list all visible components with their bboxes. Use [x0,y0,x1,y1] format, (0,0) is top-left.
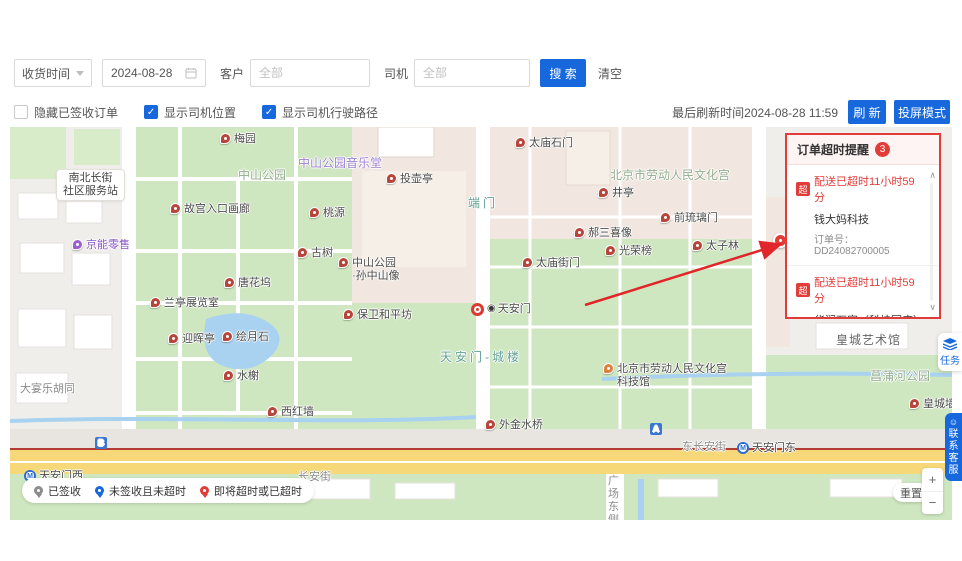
poi-label[interactable]: 太庙街门 [522,257,580,270]
poi-label[interactable]: 古树 [297,247,333,260]
poi-icon [605,245,616,256]
legend-label: 未签收且未超时 [109,483,186,499]
driver-label: 司机 [384,65,408,82]
alert-customer: 华润万家（科技园店）2 [814,312,925,319]
poi-icon [224,277,235,288]
poi-text: 中山公园·孙中山像 [352,257,400,283]
poi-icon [168,333,179,344]
metro-exit-icon: A [650,423,662,435]
poi-icon [515,137,526,148]
poi-icon [343,309,354,320]
poi-icon [150,297,161,308]
poi-icon [692,240,703,251]
poi-text: 投壶亭 [400,173,433,186]
alert-list: 超配送已超时11小时59分钱大妈科技订单号：DD24082700005超配送已超… [787,165,939,319]
attraction-icon: ◉ [487,303,496,314]
delivery-map-page: 收货时间 2024-08-28 客户 司机 搜 索 清空 隐藏已签收订单 ✓ 显… [0,0,962,561]
poi-text: 桃源 [323,207,345,220]
poi-text: 兰亭展览室 [164,297,219,310]
refresh-button[interactable]: 刷 新 [848,100,886,124]
poi-text: 前琉璃门 [674,212,718,225]
poi-label[interactable]: 太子林 [692,240,739,253]
poi-icon [660,212,671,223]
poi-text: 太庙石门 [529,137,573,150]
poi-icon [309,207,320,218]
legend-pin-icon [200,486,209,495]
poi-text: 京能零售 [86,239,130,252]
poi-icon [338,257,349,268]
poi-icon [170,203,181,214]
street-label-east-changan-street: 东长安街 [682,441,726,454]
calendar-icon [185,67,197,79]
poi-text: 皇城墙遗址 [923,398,952,411]
poi-label[interactable]: 外金水桥 [485,419,543,432]
alert-order-no: 订单号：DD24082700005 [814,231,925,257]
zoom-in-button[interactable]: + [922,468,943,492]
area-label-duanmen: 端门 [468,197,498,210]
legend-label: 即将超时或已超时 [214,483,302,499]
poi-text: 南北长街社区服务站 [63,172,118,198]
poi-icon [598,187,609,198]
poi-label[interactable]: 水榭 [223,370,259,383]
show-route-option[interactable]: ✓ 显示司机行驶路径 [262,104,378,121]
poi-icon [267,406,278,417]
map-text-label: 天安门-城楼 [440,351,522,364]
poi-label[interactable]: 前琉璃门 [660,212,718,225]
poi-text: 天安门东 [752,442,796,455]
order-timeout-panel: 订单超时提醒 3 超配送已超时11小时59分钱大妈科技订单号：DD2408270… [785,133,941,319]
tiananmen-marker-icon [471,303,484,316]
poi-text: 绘月石 [236,331,269,344]
poi-text: 西红墙 [281,406,314,419]
map-text-label: 菖蒲河公园 [870,370,930,383]
zoom-control: + − [922,468,943,514]
poi-icon [386,173,397,184]
overtime-tag-icon: 超 [796,182,810,196]
legend-item: 即将超时或已超时 [200,483,302,499]
area-label-changpu-river-park: 菖蒲河公园 [870,370,930,383]
bubble-label-community-station: 南北长街社区服务站 [56,169,125,201]
street-label-square-east-road: 广场东侧 [608,475,621,520]
scrollbar[interactable] [930,183,933,301]
area-label-zhongshan-park: 中山公园 [238,169,286,182]
area-label-working-peoples-palace: 北京市劳动人民文化宫 [610,169,730,182]
poi-icon [220,133,231,144]
poi-text: 光荣榜 [619,245,652,258]
poi-science-museum[interactable]: 北京市劳动人民文化宫科技馆 [603,363,727,389]
poi-label[interactable]: 兰亭展览室 [150,297,219,310]
poi-text: 古树 [311,247,333,260]
poi-label[interactable]: 故宫入口画廊 [170,203,250,216]
poi-text: 太子林 [706,240,739,253]
poi-icon [72,239,83,250]
map-text-label: 广场东侧 [608,475,621,520]
legend-pin-icon [34,486,43,495]
legend-pin-icon [95,486,104,495]
map-text-label: 北京市劳动人民文化宫 [610,169,730,182]
poi-label[interactable]: 保卫和平坊 [343,309,412,322]
map-text-label: 皇城艺术馆 [836,334,901,347]
map-text-label: 中山公园音乐堂 [298,157,382,170]
clear-button[interactable]: 清空 [598,65,622,82]
poi-text: 北京市劳动人民文化宫科技馆 [617,363,727,389]
poi-label[interactable]: 桃源 [309,207,345,220]
poi-label[interactable]: 绘月石 [222,331,269,344]
task-button-label: 任务 [940,352,960,367]
driver-input[interactable] [414,59,530,87]
poi-icon [223,370,234,381]
layers-icon [943,338,957,350]
contact-service-label: 联系客服 [948,429,959,477]
legend-label: 已签收 [48,483,81,499]
alert-status: 配送已超时11小时59分 [814,274,925,306]
poi-label[interactable]: 唐花坞 [224,277,271,290]
show-location-option[interactable]: ✓ 显示司机位置 [144,104,236,121]
poi-label[interactable]: 西红墙 [267,406,314,419]
street-label-dayanle-hutong: 大宴乐胡同 [20,383,75,396]
options-bar: 隐藏已签收订单 ✓ 显示司机位置 ✓ 显示司机行驶路径 最后刷新时间2024-0… [14,100,950,124]
metro-exit-icon: B [95,437,107,449]
poi-jingneng-retail[interactable]: 京能零售 [72,239,130,252]
area-label-concert-hall: 中山公园音乐堂 [298,157,382,170]
scroll-down-icon[interactable]: ∨ [929,303,936,312]
poi-text: 故宫入口画廊 [184,203,250,216]
poi-label[interactable]: 投壶亭 [386,173,433,186]
poi-text: 外金水桥 [499,419,543,432]
legend-item: 未签收且未超时 [95,483,186,499]
area-label-imperial-art-museum: 皇城艺术馆 [836,334,901,347]
map-text-label: 大宴乐胡同 [20,383,75,396]
poi-label[interactable]: 迎晖亭 [168,333,215,346]
customer-input[interactable] [250,59,370,87]
filter-type-select[interactable]: 收货时间 [14,59,92,87]
poi-text: 天安门 [498,303,531,316]
poi-label[interactable]: 郝三喜像 [574,227,632,240]
task-button[interactable]: 任务 [938,333,962,371]
panel-title: 订单超时提醒 [797,141,869,158]
alert-item[interactable]: 超配送已超时11小时59分钱大妈科技订单号：DD24082700005 [787,165,939,266]
metro-station-tiananmen-east[interactable]: M天安门东 [737,442,796,455]
metro-exit-b[interactable]: B [95,437,107,449]
poi-icon [603,363,614,374]
poi-text: 梅园 [234,133,256,146]
hide-signed-option[interactable]: 隐藏已签收订单 [14,104,118,121]
hide-signed-label: 隐藏已签收订单 [34,104,118,121]
zoom-out-button[interactable]: − [922,492,943,515]
show-route-checkbox[interactable]: ✓ [262,105,276,119]
poi-icon [522,257,533,268]
alert-status: 配送已超时11小时59分 [814,173,925,205]
cast-mode-button[interactable]: 投屏模式 [894,100,950,124]
area-label-tiananmen-tower: 天安门-城楼 [440,351,522,364]
contact-service-button[interactable]: ☺ 联系客服 [945,413,962,481]
map-text-label: 端门 [468,197,498,210]
show-location-label: 显示司机位置 [164,104,236,121]
count-badge: 3 [875,142,890,157]
poi-label[interactable]: 太庙石门 [515,137,573,150]
metro-exit-a[interactable]: A [650,423,662,435]
poi-text: 迎晖亭 [182,333,215,346]
poi-text: 太庙街门 [536,257,580,270]
poi-icon [574,227,585,238]
poi-icon [909,398,920,409]
poi-icon [222,331,233,342]
scroll-up-icon[interactable]: ∧ [929,171,936,180]
poi-text: 郝三喜像 [588,227,632,240]
poi-label[interactable]: 中山公园·孙中山像 [338,257,400,283]
filter-type-value: 收货时间 [22,65,70,82]
map-legend: 已签收未签收且未超时即将超时或已超时 [22,478,314,503]
poi-text: 唐花坞 [238,277,271,290]
map-canvas[interactable]: 中山公园中山公园音乐堂北京市劳动人民文化宫端门天安门-城楼菖蒲河公园皇城艺术馆大… [10,127,952,520]
poi-icon [297,247,308,258]
panel-header: 订单超时提醒 3 [787,135,939,165]
date-picker[interactable]: 2024-08-28 [102,59,206,87]
hide-signed-checkbox[interactable] [14,105,28,119]
chevron-down-icon [76,71,84,76]
date-value: 2024-08-28 [111,66,172,80]
poi-tiananmen[interactable]: ◉天安门 [471,303,531,316]
poi-icon [485,419,496,430]
poi-label[interactable]: 梅园 [220,133,256,146]
show-location-checkbox[interactable]: ✓ [144,105,158,119]
customer-label: 客户 [220,65,244,82]
map-text-label: 东长安街 [682,441,726,454]
poi-text: 井亭 [612,187,634,200]
chat-smiley-icon: ☺ [949,417,958,427]
map-text-label: 中山公园 [238,169,286,182]
alert-customer: 钱大妈科技 [814,211,925,227]
overtime-tag-icon: 超 [796,283,810,297]
poi-label[interactable]: 井亭 [598,187,634,200]
poi-text: 水榭 [237,370,259,383]
poi-label[interactable]: 光荣榜 [605,245,652,258]
metro-icon: M [737,442,749,454]
filter-toolbar: 收货时间 2024-08-28 客户 司机 搜 索 清空 [14,58,952,88]
alert-item[interactable]: 超配送已超时11小时59分华润万家（科技园店）2订单号：DD2408270000… [787,266,939,319]
poi-text: 保卫和平坊 [357,309,412,322]
last-refresh-time: 最后刷新时间2024-08-28 11:59 [672,104,838,121]
show-route-label: 显示司机行驶路径 [282,104,378,121]
poi-label[interactable]: 皇城墙遗址 [909,398,952,411]
legend-item: 已签收 [34,483,81,499]
search-button[interactable]: 搜 索 [540,59,586,87]
